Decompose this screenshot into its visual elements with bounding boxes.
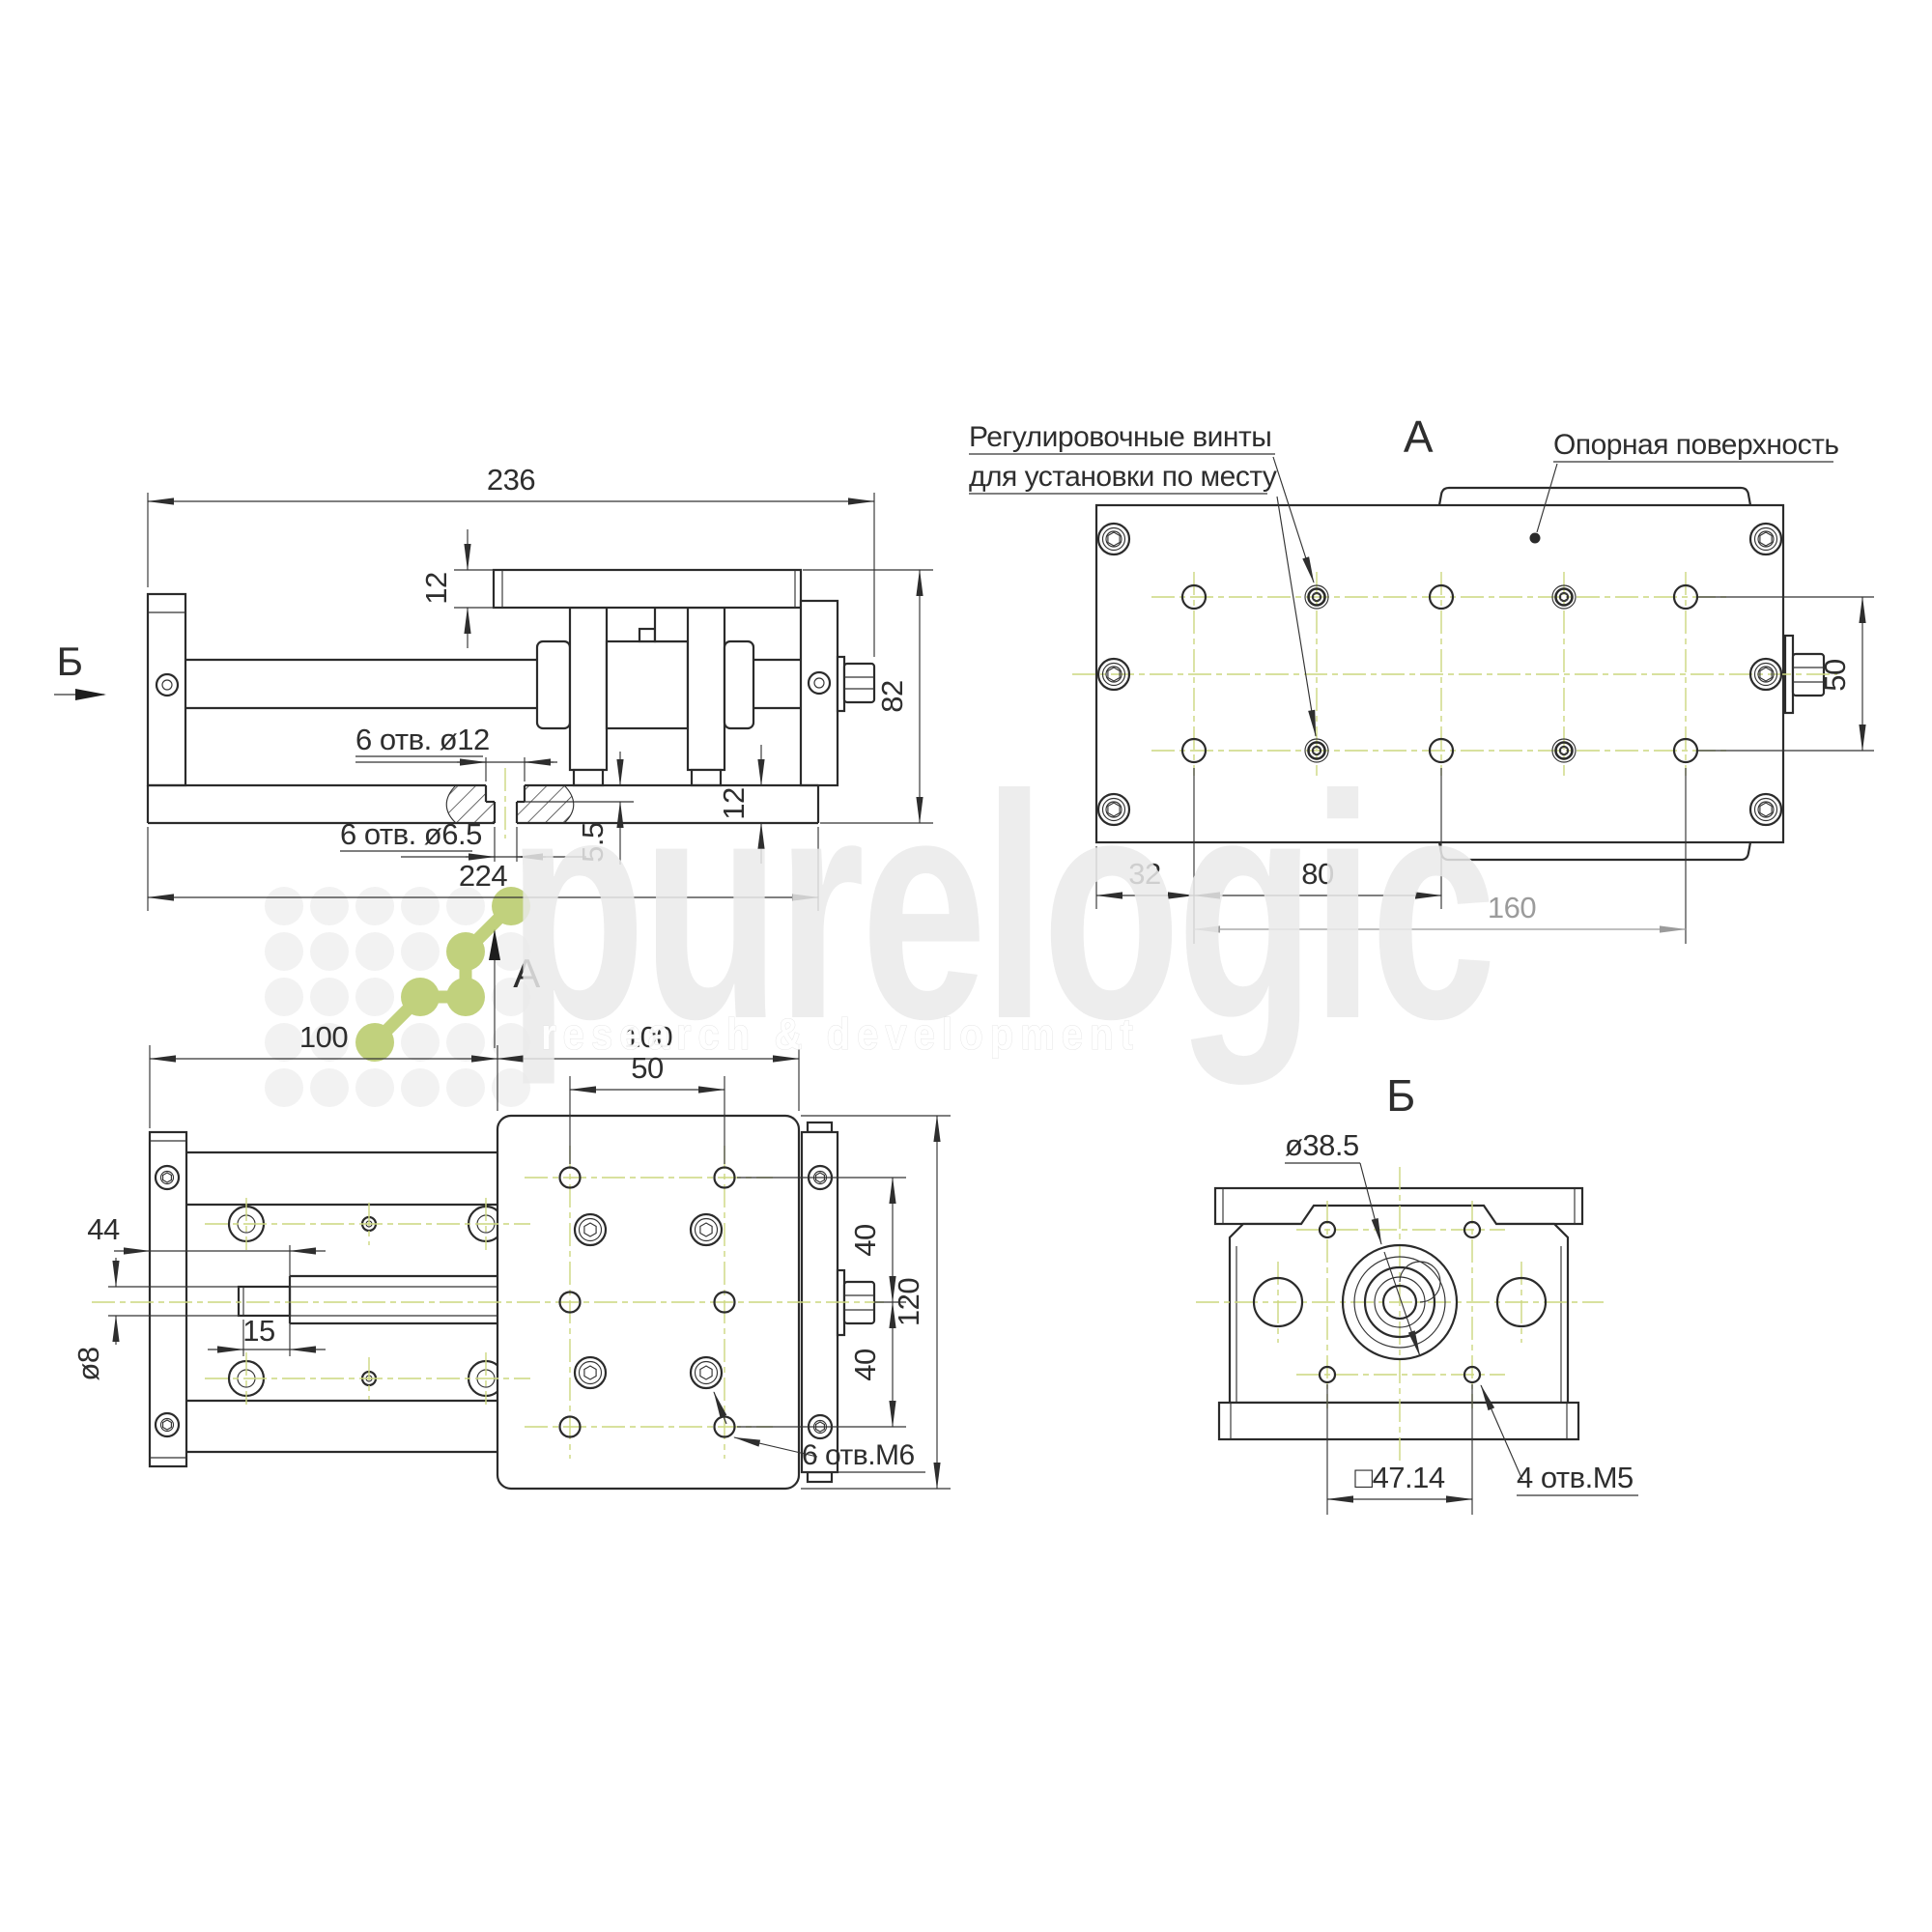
end-base-strip (1219, 1403, 1578, 1439)
label-end-bore: ø38.5 (1285, 1128, 1359, 1162)
dim-plan-row-bot: 40 (848, 1349, 882, 1381)
view-title-a: А (1404, 412, 1434, 462)
watermark: purelogic research & development (507, 728, 1492, 1087)
dim-plan-width: 120 (892, 1278, 925, 1326)
dim-top-rows: 50 (1818, 659, 1852, 692)
dim-top-span: 160 (1488, 891, 1536, 924)
dim-side-height: 82 (875, 680, 909, 712)
note-adjust-screws-2: для установки по месту (969, 461, 1277, 493)
dim-plan-shaft: ø8 (71, 1347, 105, 1380)
dim-end-square: □47.14 (1354, 1461, 1445, 1494)
label-plan-m6: 6 отв.М6 (802, 1439, 915, 1471)
end-face (1230, 1206, 1568, 1403)
view-end: ø38.5 □47.14 4 отв.М5 Б (1196, 1070, 1638, 1515)
plan-shaft-stub (239, 1287, 290, 1316)
dim-side-length: 236 (487, 463, 535, 497)
dim-plan-row-top: 40 (848, 1224, 882, 1257)
side-shaft-nut (844, 664, 874, 702)
dim-side-base-len: 224 (459, 859, 507, 893)
watermark-tagline: research & development (541, 1009, 1140, 1059)
dim-plan-stub-pos: 44 (87, 1212, 120, 1246)
view-marker-b: Б (56, 639, 82, 684)
note-surface: Опорная поверхность (1553, 429, 1838, 461)
technical-drawing: 236 12 82 12 5.5 6 отв. ø12 (0, 0, 1932, 1932)
drawing-sheet: 236 12 82 12 5.5 6 отв. ø12 (0, 0, 1932, 1932)
logo-mark (265, 887, 530, 1107)
label-end-m5: 4 отв.М5 (1517, 1461, 1634, 1494)
top-tab-upper (1439, 488, 1750, 505)
dim-plan-stub-len: 15 (242, 1314, 274, 1348)
side-nut-body (607, 641, 688, 728)
dim-side-plate-thk: 12 (419, 572, 453, 604)
label-side-through: 6 отв. ø6.5 (340, 817, 482, 851)
surface-dot (1530, 533, 1541, 544)
side-carriage-plate (494, 570, 801, 608)
dim-plan-left: 100 (299, 1020, 348, 1054)
label-side-cbore: 6 отв. ø12 (355, 723, 490, 756)
note-adjust-screws-1: Регулировочные винты (969, 421, 1271, 453)
